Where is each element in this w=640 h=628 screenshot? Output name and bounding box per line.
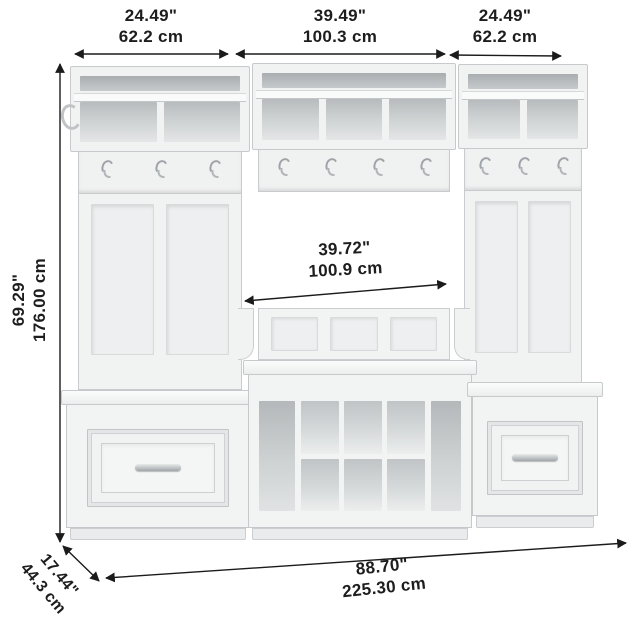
cm-value: 100.3 cm [260,26,420,47]
dim-height-label: 69.29" 176.00 cm [8,220,50,380]
dimension-diagram: 24.49" 62.2 cm 39.49" 100.3 cm 24.49" 62… [0,0,640,628]
dim-top-left-label: 24.49" 62.2 cm [71,5,231,47]
cm-value: 62.2 cm [425,26,585,47]
dim-top-middle-label: 39.49" 100.3 cm [260,5,420,47]
inch-value: 69.29" [8,220,29,380]
dim-top-right-label: 24.49" 62.2 cm [425,5,585,47]
dim-line-opening [245,284,446,301]
inch-value: 24.49" [425,5,585,26]
inch-value: 39.49" [260,5,420,26]
cm-value: 176.00 cm [29,220,50,380]
dimension-lines [0,0,640,628]
inch-value: 24.49" [71,5,231,26]
dim-opening-label: 39.72" 100.9 cm [264,234,426,284]
cm-value: 62.2 cm [71,26,231,47]
dim-line-top-right [450,55,561,56]
